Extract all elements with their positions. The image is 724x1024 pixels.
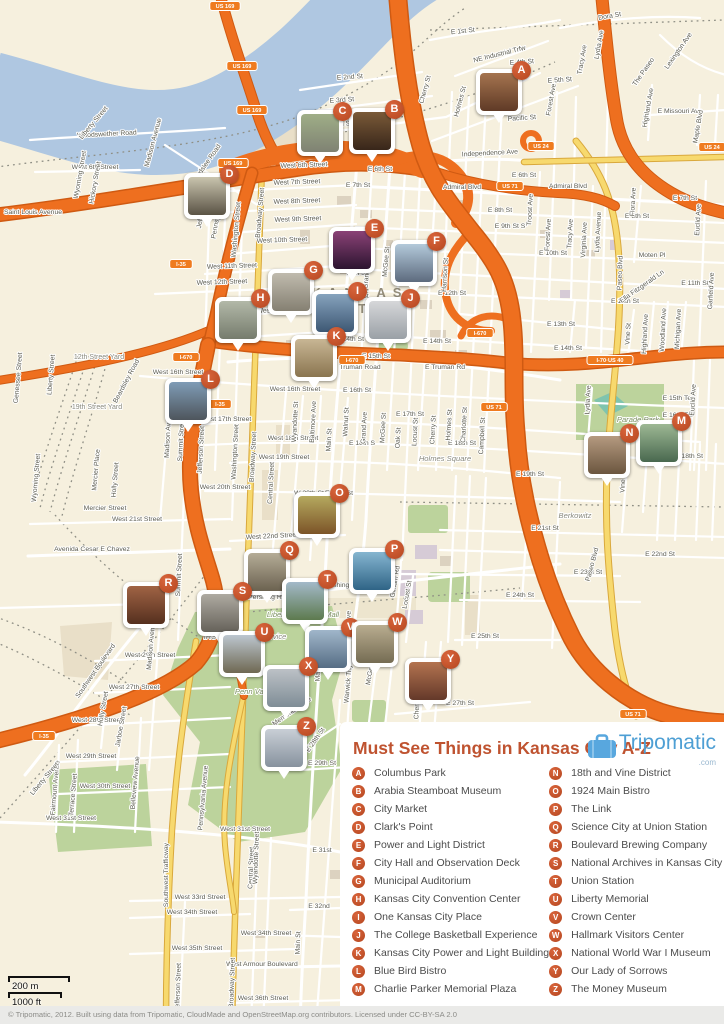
legend-letter-badge: Z [549, 983, 562, 996]
poi-letter-badge: X [299, 657, 318, 676]
legend-item-S: SNational Archives in Kansas City [549, 854, 722, 872]
poi-letter-badge: M [672, 412, 691, 431]
poi-marker-B[interactable]: B [349, 108, 395, 154]
legend-item-R: RBoulevard Brewing Company [549, 836, 722, 854]
poi-marker-C[interactable]: C [297, 110, 343, 156]
scale-bar: 200 m 1000 ft [8, 976, 70, 1008]
legend-item-N: N18th and Vine District [549, 764, 722, 782]
poi-photo [127, 586, 165, 624]
poi-marker-O[interactable]: O [294, 492, 340, 538]
legend-item-P: PThe Link [549, 800, 722, 818]
poi-marker-M[interactable]: M [636, 420, 682, 466]
poi-photo [356, 625, 394, 663]
legend-item-U: ULiberty Memorial [549, 890, 722, 908]
legend-item-label: Blue Bird Bistro [374, 965, 446, 977]
legend-letter-badge: J [352, 929, 365, 942]
legend-letter-badge: G [352, 875, 365, 888]
legend-item-label: Boulevard Brewing Company [571, 839, 707, 851]
poi-letter-badge: G [304, 261, 323, 280]
legend-letter-badge: E [352, 839, 365, 852]
poi-letter-badge: D [220, 165, 239, 184]
poi-photo [295, 339, 333, 377]
legend-letter-badge: X [549, 947, 562, 960]
legend-item-D: DClark's Point [352, 818, 549, 836]
poi-marker-P[interactable]: P [349, 548, 395, 594]
legend-item-label: City Market [374, 803, 427, 815]
legend-item-O: O1924 Main Bistro [549, 782, 722, 800]
poi-marker-J[interactable]: J [365, 297, 411, 343]
copyright-bar: © Tripomatic, 2012. Built using data fro… [0, 1006, 724, 1024]
legend-item-label: Science City at Union Station [571, 821, 707, 833]
legend-item-label: 18th and Vine District [571, 767, 671, 779]
legend-item-I: IOne Kansas City Place [352, 908, 549, 926]
poi-photo [169, 382, 207, 420]
legend-item-label: Crown Center [571, 911, 636, 923]
legend-item-label: Kansas City Power and Light Building [374, 947, 549, 959]
poi-marker-L[interactable]: L [165, 378, 211, 424]
poi-letter-badge: N [620, 424, 639, 443]
poi-marker-H[interactable]: H [215, 297, 261, 343]
legend-item-A: AColumbus Park [352, 764, 549, 782]
legend-item-Z: ZThe Money Museum [549, 980, 722, 998]
poi-photo [588, 436, 626, 474]
poi-letter-badge: Z [297, 717, 316, 736]
poi-letter-badge: L [201, 370, 220, 389]
poi-marker-D[interactable]: D [184, 173, 230, 219]
legend-item-label: The Link [571, 803, 611, 815]
legend-letter-badge: C [352, 803, 365, 816]
poi-marker-F[interactable]: F [391, 240, 437, 286]
legend-item-Y: YOur Lady of Sorrows [549, 962, 722, 980]
legend-letter-badge: Q [549, 821, 562, 834]
legend-item-label: Arabia Steamboat Museum [374, 785, 501, 797]
legend-item-F: FCity Hall and Observation Deck [352, 854, 549, 872]
poi-letter-badge: B [385, 100, 404, 119]
poi-photo [223, 635, 261, 673]
legend-item-label: Columbus Park [374, 767, 446, 779]
legend-item-B: BArabia Steamboat Museum [352, 782, 549, 800]
legend-item-label: The Money Museum [571, 983, 667, 995]
poi-photo [353, 112, 391, 150]
legend-item-label: The College Basketball Experience [374, 929, 537, 941]
legend-letter-badge: H [352, 893, 365, 906]
legend-item-M: MCharlie Parker Memorial Plaza [352, 980, 549, 998]
poi-letter-badge: K [327, 327, 346, 346]
legend-item-Q: QScience City at Union Station [549, 818, 722, 836]
legend-items: AColumbus ParkBArabia Steamboat MuseumCC… [352, 764, 720, 998]
legend-item-L: LBlue Bird Bistro [352, 962, 549, 980]
poi-marker-G[interactable]: G [268, 269, 314, 315]
legend-item-label: Power and Light District [374, 839, 485, 851]
legend-letter-badge: P [549, 803, 562, 816]
poi-letter-badge: J [401, 289, 420, 308]
legend-item-G: GMunicipal Auditorium [352, 872, 549, 890]
poi-marker-N[interactable]: N [584, 432, 630, 478]
legend-item-label: Clark's Point [374, 821, 433, 833]
poi-letter-badge: A [512, 61, 531, 80]
poi-letter-badge: Y [441, 650, 460, 669]
legend-item-T: TUnion Station [549, 872, 722, 890]
legend-item-H: HKansas City Convention Center [352, 890, 549, 908]
poi-letter-badge: R [159, 574, 178, 593]
poi-photo [301, 114, 339, 152]
poi-photo [267, 669, 305, 707]
poi-letter-badge: S [233, 582, 252, 601]
legend-letter-badge: M [352, 983, 365, 996]
legend-item-label: City Hall and Observation Deck [374, 857, 520, 869]
legend-item-label: National Archives in Kansas City [571, 857, 722, 869]
legend-item-X: XNational World War I Museum [549, 944, 722, 962]
poi-photo [201, 594, 239, 632]
legend-item-label: One Kansas City Place [374, 911, 482, 923]
legend-letter-badge: S [549, 857, 562, 870]
poi-photo [480, 73, 518, 111]
legend-item-W: WHallmark Visitors Center [549, 926, 722, 944]
legend-item-label: Our Lady of Sorrows [571, 965, 667, 977]
legend-letter-badge: R [549, 839, 562, 852]
legend-item-C: CCity Market [352, 800, 549, 818]
legend-item-K: KKansas City Power and Light Building [352, 944, 549, 962]
poi-photo [640, 424, 678, 462]
copyright-text: © Tripomatic, 2012. Built using data fro… [8, 1010, 457, 1019]
poi-photo [219, 301, 257, 339]
map-poster: KANSASCITYHolmes SquareBerkowitzParade P… [0, 0, 724, 1024]
legend-item-label: Liberty Memorial [571, 893, 649, 905]
legend-item-label: 1924 Main Bistro [571, 785, 650, 797]
legend-letter-badge: I [352, 911, 365, 924]
legend-item-label: Municipal Auditorium [374, 875, 471, 887]
poi-photo [188, 177, 226, 215]
scale-metric-label: 200 m [8, 982, 70, 992]
legend-letter-badge: K [352, 947, 365, 960]
legend-item-J: JThe College Basketball Experience [352, 926, 549, 944]
legend-item-label: Charlie Parker Memorial Plaza [374, 983, 516, 995]
poi-photo [395, 244, 433, 282]
poi-letter-badge: W [388, 613, 407, 632]
poi-photo [333, 231, 371, 269]
poi-marker-Y[interactable]: Y [405, 658, 451, 704]
poi-letter-badge: Q [280, 541, 299, 560]
poi-photo [286, 582, 324, 620]
legend-letter-badge: A [352, 767, 365, 780]
legend-letter-badge: V [549, 911, 562, 924]
poi-letter-badge: I [348, 282, 367, 301]
legend-letter-badge: Y [549, 965, 562, 978]
poi-marker-R[interactable]: R [123, 582, 169, 628]
poi-marker-S[interactable]: S [197, 590, 243, 636]
legend-item-E: EPower and Light District [352, 836, 549, 854]
poi-letter-badge: C [333, 102, 352, 121]
legend-letter-badge: U [549, 893, 562, 906]
poi-marker-W[interactable]: W [352, 621, 398, 667]
legend-letter-badge: B [352, 785, 365, 798]
legend-letter-badge: T [549, 875, 562, 888]
poi-marker-T[interactable]: T [282, 578, 328, 624]
poi-photo [248, 553, 286, 591]
poi-photo [298, 496, 336, 534]
legend-letter-badge: F [352, 857, 365, 870]
legend-panel: Must See Things in Kansas City A-Z Tripo… [340, 722, 724, 1006]
poi-photo [272, 273, 310, 311]
poi-marker-E[interactable]: E [329, 227, 375, 273]
legend-item-label: Hallmark Visitors Center [571, 929, 684, 941]
legend-item-label: Kansas City Convention Center [374, 893, 521, 905]
poi-photo [353, 552, 391, 590]
suitcase-icon [585, 732, 619, 762]
poi-letter-badge: U [255, 623, 274, 642]
poi-marker-A[interactable]: A [476, 69, 522, 115]
legend-item-label: Union Station [571, 875, 634, 887]
legend-letter-badge: L [352, 965, 365, 978]
legend-item-V: VCrown Center [549, 908, 722, 926]
poi-letter-badge: E [365, 219, 384, 238]
poi-letter-badge: H [251, 289, 270, 308]
legend-item-label: National World War I Museum [571, 947, 710, 959]
poi-marker-X[interactable]: X [263, 665, 309, 711]
poi-photo [369, 301, 407, 339]
poi-photo [265, 729, 303, 767]
poi-letter-badge: F [427, 232, 446, 251]
legend-letter-badge: O [549, 785, 562, 798]
poi-marker-Z[interactable]: Z [261, 725, 307, 771]
poi-marker-K[interactable]: K [291, 335, 337, 381]
poi-photo [409, 662, 447, 700]
legend-letter-badge: W [549, 929, 562, 942]
legend-letter-badge: N [549, 767, 562, 780]
legend-letter-badge: D [352, 821, 365, 834]
poi-letter-badge: T [318, 570, 337, 589]
poi-letter-badge: P [385, 540, 404, 559]
poi-marker-U[interactable]: U [219, 631, 265, 677]
poi-letter-badge: O [330, 484, 349, 503]
